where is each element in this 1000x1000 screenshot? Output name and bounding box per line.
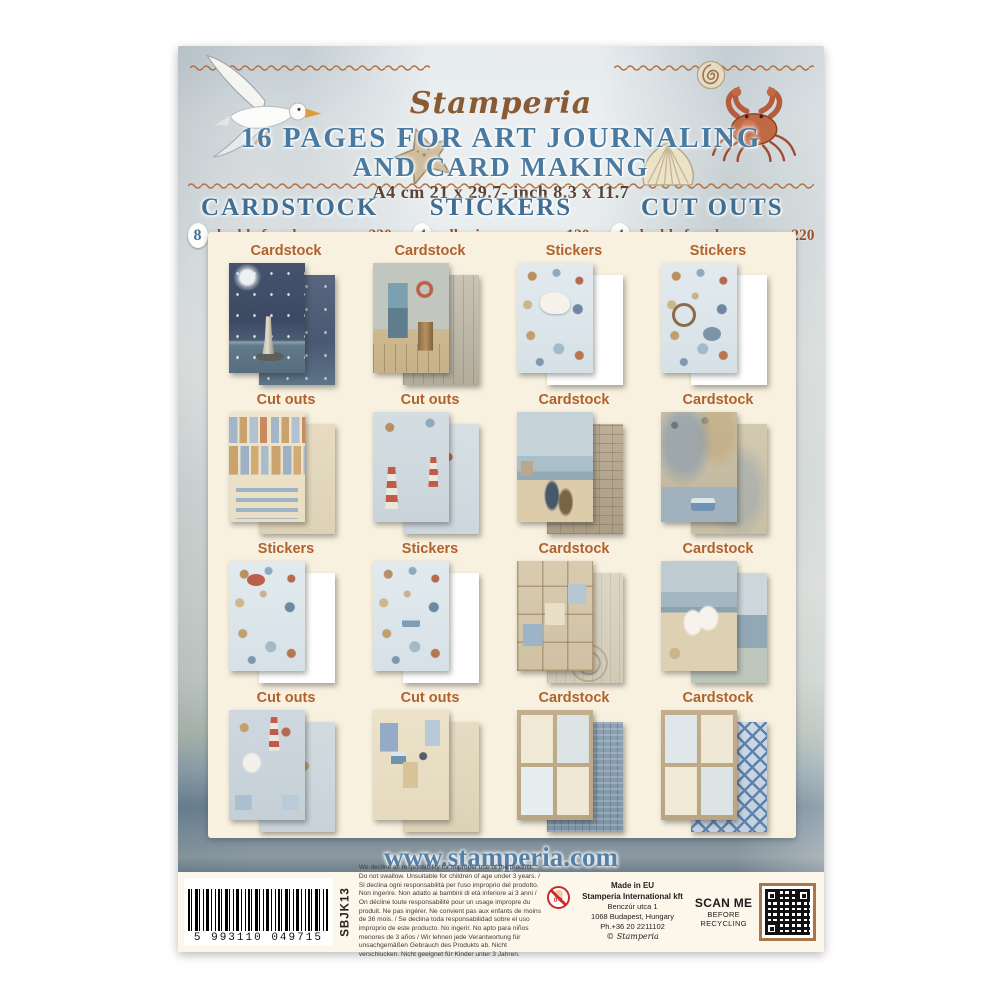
stamperia-logo: Stamperia	[178, 86, 824, 121]
sheet-type-label: Stickers	[358, 541, 502, 557]
grid-cell: Cardstock	[214, 242, 358, 391]
copyright-line: © Stamperia	[577, 932, 689, 942]
sheet-type-label: Cardstock	[646, 541, 790, 557]
sheet-front	[229, 710, 305, 820]
pack-title-line1: 16 PAGES FOR ART JOURNALING	[178, 122, 824, 155]
company-line: Stamperia International kft	[577, 892, 689, 902]
sheet-type-label: Cardstock	[646, 392, 790, 408]
column-title: CARDSTOCK	[184, 194, 395, 222]
grid-cell: Cardstock	[646, 391, 790, 540]
sku-code: SBJK13	[339, 878, 353, 946]
column-title: STICKERS	[395, 194, 606, 222]
manufacturer-address: Made in EU Stamperia International kft B…	[577, 881, 689, 942]
sheet-type-label: Cardstock	[358, 243, 502, 259]
sheet-front	[373, 561, 449, 671]
sheet-front	[229, 561, 305, 671]
sheet-type-label: Cardstock	[502, 541, 646, 557]
sheet-type-label: Cardstock	[214, 243, 358, 259]
sheet-preview-tags-diamond	[659, 709, 777, 837]
sheet-preview-van-stickers	[371, 560, 489, 688]
sheet-preview-horses-beach	[659, 560, 777, 688]
sheet-preview-beach-boats	[515, 411, 633, 539]
count-badge: 8	[188, 223, 208, 248]
sheet-type-label: Stickers	[646, 243, 790, 259]
barcode-bars	[188, 889, 328, 931]
grid-cell: Cardstock	[358, 242, 502, 391]
sheet-type-label: Cut outs	[214, 392, 358, 408]
sheet-preview-sea-creatures-stickers	[515, 262, 633, 390]
sheet-preview-doorway-barrel	[371, 262, 489, 390]
sheet-type-label: Cardstock	[502, 392, 646, 408]
column-title: CUT OUTS	[607, 194, 818, 222]
grid-cell: Stickers	[358, 540, 502, 689]
sheet-preview-tags-denim	[515, 709, 633, 837]
barcode-digits: 5 993110 049715	[194, 932, 323, 944]
sheet-front	[373, 263, 449, 373]
grid-cell: Stickers	[646, 242, 790, 391]
sheet-preview-nautical-stickers	[659, 262, 777, 390]
sheet-preview-night-sky-lighthouse	[227, 262, 345, 390]
grid-cell: Cut outs	[214, 391, 358, 540]
sheet-preview-map-van	[659, 411, 777, 539]
sheet-preview-horses-cutouts	[227, 709, 345, 837]
sheet-front	[517, 710, 593, 820]
sheet-front	[229, 412, 305, 522]
grid-cell: Cut outs	[358, 391, 502, 540]
phone-line: Ph.+36 20 2211102	[577, 922, 689, 932]
sheet-front	[661, 561, 737, 671]
grid-cell: Cardstock	[646, 540, 790, 689]
grid-cell: Cardstock	[502, 391, 646, 540]
qr-code	[759, 883, 816, 941]
sheet-type-label: Cut outs	[358, 690, 502, 706]
grid-cell: Cardstock	[502, 540, 646, 689]
scan-me-label: SCAN ME BEFORE RECYCLING	[694, 896, 753, 928]
grid-cell: Cardstock	[646, 689, 790, 838]
grid-cell: Cut outs	[214, 689, 358, 838]
packaging-back-card: Stamperia 16 PAGES FOR ART JOURNALING AN…	[178, 46, 824, 952]
sheet-front	[517, 561, 593, 671]
sheet-type-label: Cardstock	[646, 690, 790, 706]
sheet-front	[517, 263, 593, 373]
grid-cell: Cut outs	[358, 689, 502, 838]
sheet-preview-patchwork	[515, 560, 633, 688]
made-in-line: Made in EU	[577, 881, 689, 891]
barcode: 5 993110 049715	[184, 878, 333, 946]
product-photo-page: Stamperia 16 PAGES FOR ART JOURNALING AN…	[0, 0, 1000, 1000]
sheet-front	[373, 412, 449, 522]
sheet-front	[517, 412, 593, 522]
sheet-type-label: Cut outs	[358, 392, 502, 408]
age-warning-0-3-icon: 0-3	[547, 886, 570, 909]
sheet-front	[661, 412, 737, 522]
street-line: Benczúr utca 1	[577, 902, 689, 912]
sheet-type-label: Stickers	[502, 243, 646, 259]
preview-grid: Cardstock Cardstock Stickers Stickers Cu…	[208, 232, 796, 838]
sheet-preview-shells-stickers	[227, 560, 345, 688]
sheet-preview-victorian-houses-cutouts	[371, 709, 489, 837]
sheet-front	[661, 710, 737, 820]
sheet-type-label: Cardstock	[502, 690, 646, 706]
sheet-front	[229, 263, 305, 373]
grid-cell: Stickers	[502, 242, 646, 391]
safety-disclaimer: We decline all responsibility for improp…	[359, 864, 571, 960]
city-line: 1068 Budapest, Hungary	[577, 912, 689, 922]
preview-panel: Cardstock Cardstock Stickers Stickers Cu…	[208, 232, 796, 838]
sheet-type-label: Cut outs	[214, 690, 358, 706]
sheet-preview-lighthouses-cutouts	[371, 411, 489, 539]
sheet-preview-houses-cutouts	[227, 411, 345, 539]
sheet-type-label: Stickers	[214, 541, 358, 557]
sheet-front	[661, 263, 737, 373]
grid-cell: Stickers	[214, 540, 358, 689]
grid-cell: Cardstock	[502, 689, 646, 838]
sheet-front	[373, 710, 449, 820]
pack-title-line2: AND CARD MAKING	[178, 152, 824, 183]
label-bar: 5 993110 049715 SBJK13 We decline all re…	[178, 872, 824, 952]
